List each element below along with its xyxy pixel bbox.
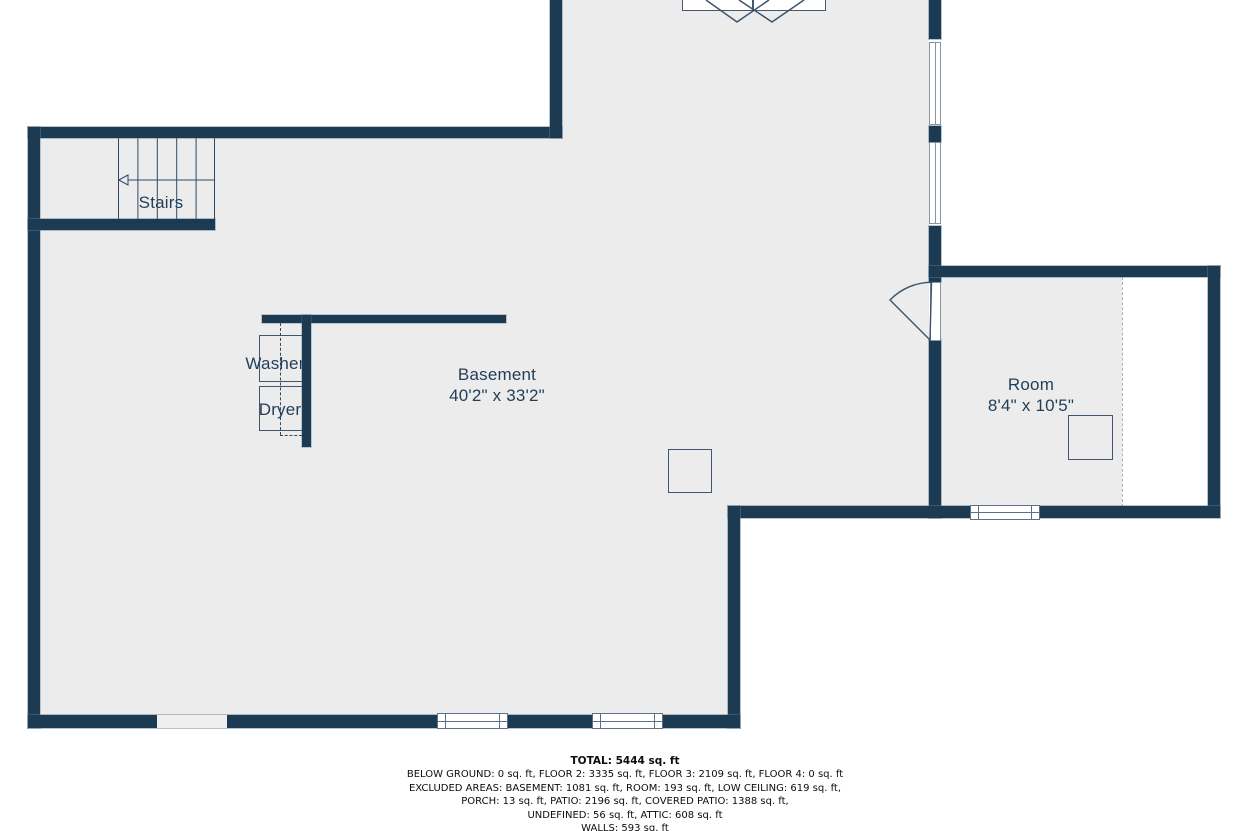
wall-right-segment-b (929, 126, 941, 142)
room-low-ceiling-area (1122, 277, 1209, 507)
window-bottom-left (437, 713, 508, 729)
wall-top-left-horizontal (28, 127, 562, 138)
laundry-dashed-line-horizontal (280, 435, 302, 436)
doorway-opening-bottom (157, 715, 227, 728)
room-dimensions: 8'4" x 10'5" (988, 396, 1074, 416)
wall-room-right (1208, 266, 1220, 517)
wall-laundry-top (262, 315, 506, 323)
wall-right-segment-a (929, 0, 941, 39)
summary-line-undefined-attic: UNDEFINED: 56 sq. ft, ATTIC: 608 sq. ft (0, 809, 1250, 822)
summary-line-walls: WALLS: 593 sq. ft (0, 822, 1250, 831)
dryer-label: Dryer (259, 400, 302, 420)
basement-dimensions: 40'2" x 33'2" (449, 386, 545, 406)
wall-left (28, 127, 40, 728)
stairs-label: Stairs (139, 193, 184, 213)
area-summary: TOTAL: 5444 sq. ft BELOW GROUND: 0 sq. f… (0, 755, 1250, 831)
window-room-bottom (970, 505, 1040, 520)
wall-right-segment-d (929, 340, 941, 518)
utility-box-room (1068, 415, 1113, 460)
wall-laundry-partition (302, 315, 311, 447)
basement-label: Basement (458, 365, 536, 385)
window-right-upper (929, 42, 941, 125)
floorplan-canvas: Stairs Washer Dryer Basement 40'2" x 33'… (0, 0, 1250, 831)
wall-room-top (929, 266, 1220, 277)
summary-line-floors: BELOW GROUND: 0 sq. ft, FLOOR 2: 3335 sq… (0, 768, 1250, 781)
summary-total: TOTAL: 5444 sq. ft (0, 755, 1250, 768)
window-bottom-right (592, 713, 663, 729)
room-door-swing-icon (865, 275, 945, 345)
room-label: Room (1008, 375, 1054, 395)
summary-line-excluded: EXCLUDED AREAS: BASEMENT: 1081 sq. ft, R… (0, 782, 1250, 795)
double-door-swing-icon (682, 0, 827, 28)
utility-box-basement (668, 449, 712, 493)
floor-area-bottom-left (41, 506, 728, 715)
wall-top-vertical (550, 0, 562, 138)
wall-stairs-bottom (28, 219, 215, 230)
summary-line-porch-patio: PORCH: 13 sq. ft, PATIO: 2196 sq. ft, CO… (0, 795, 1250, 808)
washer-label: Washer (245, 354, 304, 374)
wall-bottom-right-vertical (728, 506, 740, 728)
window-right-lower (929, 142, 941, 224)
